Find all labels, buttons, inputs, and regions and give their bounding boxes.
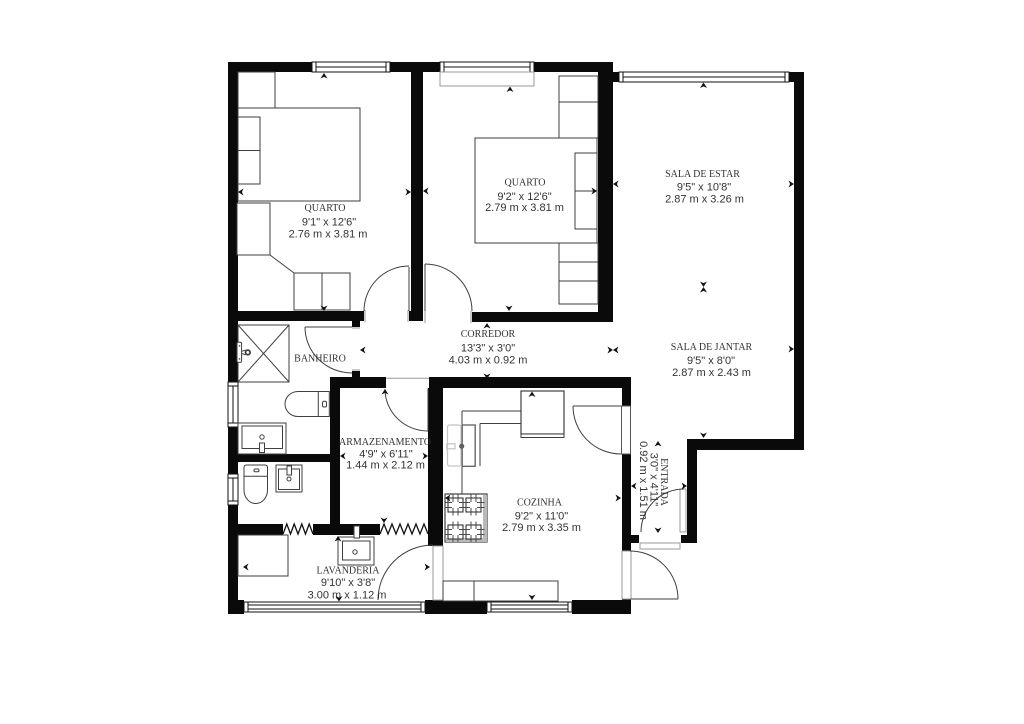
- svg-text:3.00 m x 1.12 m: 3.00 m x 1.12 m: [308, 590, 387, 602]
- svg-text:SALA DE ESTAR: SALA DE ESTAR: [665, 169, 740, 180]
- svg-text:2.79 m x 3.35 m: 2.79 m x 3.35 m: [502, 522, 581, 534]
- svg-text:2.87 m x 2.43 m: 2.87 m x 2.43 m: [672, 367, 751, 379]
- svg-text:9'10" x 3'8": 9'10" x 3'8": [321, 577, 375, 589]
- svg-text:9'2" x 11'0": 9'2" x 11'0": [515, 511, 568, 523]
- svg-text:2.76 m x 3.81 m: 2.76 m x 3.81 m: [289, 229, 368, 241]
- svg-text:LAVANDERIA: LAVANDERIA: [317, 566, 381, 577]
- svg-text:2.87 m x 3.26 m: 2.87 m x 3.26 m: [665, 194, 744, 206]
- svg-text:4.03 m x 0.92 m: 4.03 m x 0.92 m: [449, 355, 528, 367]
- svg-text:9'1" x 12'6": 9'1" x 12'6": [302, 217, 356, 229]
- svg-text:2.79 m x 3.81 m: 2.79 m x 3.81 m: [485, 202, 564, 214]
- svg-text:COZINHA: COZINHA: [517, 498, 563, 509]
- svg-text:9'5" x 8'0": 9'5" x 8'0": [687, 355, 735, 367]
- svg-text:ARMAZENAMENTO: ARMAZENAMENTO: [339, 437, 431, 448]
- svg-text:BANHEIRO: BANHEIRO: [294, 354, 346, 365]
- svg-text:CORREDOR: CORREDOR: [461, 329, 516, 340]
- svg-text:QUARTO: QUARTO: [305, 203, 346, 214]
- svg-text:0.92 m x 1.51 m: 0.92 m x 1.51 m: [637, 441, 649, 520]
- svg-text:QUARTO: QUARTO: [505, 178, 546, 189]
- svg-text:SALA DE JANTAR: SALA DE JANTAR: [671, 342, 753, 353]
- svg-text:9'5" x 10'8": 9'5" x 10'8": [677, 182, 731, 194]
- svg-text:13'3" x 3'0": 13'3" x 3'0": [461, 343, 515, 355]
- svg-text:1.44 m x 2.12 m: 1.44 m x 2.12 m: [346, 460, 425, 472]
